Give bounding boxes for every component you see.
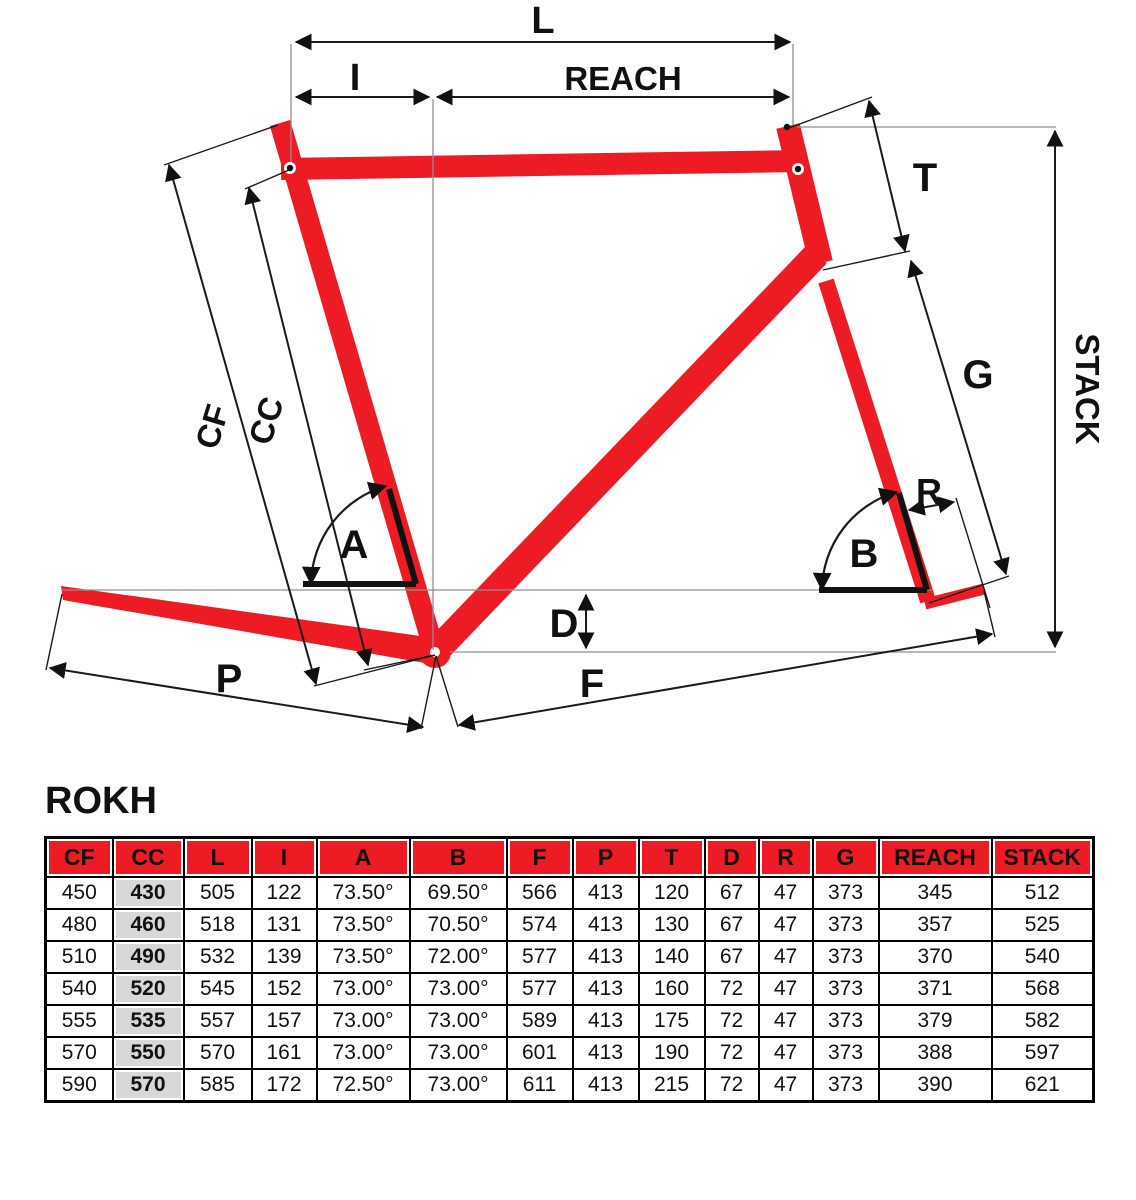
cell-a: 73.00° [317, 1005, 410, 1037]
label-A: A [340, 523, 369, 567]
cell-cf: 480 [46, 909, 113, 941]
label-CF: CF [188, 400, 236, 453]
cell-cf: 590 [46, 1069, 113, 1102]
cell-t: 175 [639, 1005, 705, 1037]
table-header: CFCCLIABFPTDRGREACHSTACK [46, 838, 1094, 878]
cell-reach: 357 [879, 909, 992, 941]
cell-g: 373 [813, 973, 879, 1005]
cell-cf: 450 [46, 877, 113, 909]
label-STACK: STACK [1069, 333, 1106, 444]
dim-F [459, 634, 992, 725]
column-header-d: D [705, 838, 759, 878]
table-row: 59057058517272.50°73.00°6114132157247373… [46, 1069, 1094, 1102]
cell-a: 73.50° [317, 909, 410, 941]
cell-stack: 568 [992, 973, 1094, 1005]
cell-t: 140 [639, 941, 705, 973]
column-header-reach: REACH [879, 838, 992, 878]
cell-r: 47 [759, 1005, 813, 1037]
cell-reach: 371 [879, 973, 992, 1005]
dimension-labels: L I REACH T G STACK R B A D F P CF CC [188, 0, 1106, 706]
header-row: CFCCLIABFPTDRGREACHSTACK [46, 838, 1094, 878]
cell-l: 518 [184, 909, 252, 941]
cell-f: 577 [507, 973, 573, 1005]
cell-g: 373 [813, 1037, 879, 1069]
cell-t: 120 [639, 877, 705, 909]
geometry-diagram: L I REACH T G STACK R B A D F P CF CC [0, 0, 1136, 772]
label-T: T [913, 156, 937, 200]
cell-l: 585 [184, 1069, 252, 1102]
cell-reach: 390 [879, 1069, 992, 1102]
cell-r: 47 [759, 877, 813, 909]
cell-stack: 512 [992, 877, 1094, 909]
head-tube [788, 126, 821, 263]
cell-f: 601 [507, 1037, 573, 1069]
cell-t: 215 [639, 1069, 705, 1102]
page-title: ROKH [45, 780, 1092, 823]
column-header-stack: STACK [992, 838, 1094, 878]
cell-p: 413 [573, 973, 639, 1005]
cell-l: 532 [184, 941, 252, 973]
column-header-a: A [317, 838, 410, 878]
top-tube [281, 161, 801, 169]
cell-p: 413 [573, 1005, 639, 1037]
chainstay [61, 586, 442, 666]
cell-cf: 570 [46, 1037, 113, 1069]
table-row: 57055057016173.00°73.00°6014131907247373… [46, 1037, 1094, 1069]
cell-g: 373 [813, 1069, 879, 1102]
cell-l: 505 [184, 877, 252, 909]
column-header-g: G [813, 838, 879, 878]
cell-a: 73.00° [317, 1037, 410, 1069]
label-G: G [962, 353, 993, 397]
cell-f: 574 [507, 909, 573, 941]
cell-cc: 535 [113, 1005, 184, 1037]
cell-r: 47 [759, 973, 813, 1005]
label-B: B [850, 532, 879, 576]
cell-cf: 555 [46, 1005, 113, 1037]
cell-cc: 490 [113, 941, 184, 973]
cell-a: 72.50° [317, 1069, 410, 1102]
cell-a: 73.00° [317, 973, 410, 1005]
cell-cc: 460 [113, 909, 184, 941]
cell-t: 160 [639, 973, 705, 1005]
cell-p: 413 [573, 1069, 639, 1102]
label-REACH: REACH [564, 60, 681, 97]
cell-stack: 597 [992, 1037, 1094, 1069]
cell-cf: 540 [46, 973, 113, 1005]
cell-stack: 582 [992, 1005, 1094, 1037]
cell-d: 72 [705, 1037, 759, 1069]
label-R: R [916, 471, 942, 512]
label-F: F [580, 662, 604, 706]
column-header-i: I [252, 838, 317, 878]
cell-r: 47 [759, 1069, 813, 1102]
cell-g: 373 [813, 909, 879, 941]
cell-d: 67 [705, 909, 759, 941]
cell-r: 47 [759, 1037, 813, 1069]
table-row: 48046051813173.50°70.50°5744131306747373… [46, 909, 1094, 941]
table-row: 55553555715773.00°73.00°5894131757247373… [46, 1005, 1094, 1037]
cell-reach: 388 [879, 1037, 992, 1069]
cell-a: 73.50° [317, 941, 410, 973]
label-P: P [216, 657, 243, 701]
cell-cc: 570 [113, 1069, 184, 1102]
cell-cc: 520 [113, 973, 184, 1005]
column-header-b: B [410, 838, 507, 878]
cell-g: 373 [813, 941, 879, 973]
cell-b: 72.00° [410, 941, 507, 973]
cell-cc: 550 [113, 1037, 184, 1069]
cell-cc: 430 [113, 877, 184, 909]
cell-g: 373 [813, 877, 879, 909]
cell-b: 73.00° [410, 1005, 507, 1037]
cell-b: 73.00° [410, 1069, 507, 1102]
cell-p: 413 [573, 941, 639, 973]
cell-p: 413 [573, 877, 639, 909]
cell-i: 161 [252, 1037, 317, 1069]
cell-i: 172 [252, 1069, 317, 1102]
column-header-cf: CF [46, 838, 113, 878]
column-header-p: P [573, 838, 639, 878]
cell-f: 577 [507, 941, 573, 973]
dim-T [869, 101, 905, 251]
cell-f: 589 [507, 1005, 573, 1037]
column-header-cc: CC [113, 838, 184, 878]
label-L: L [531, 0, 554, 42]
cell-r: 47 [759, 941, 813, 973]
cell-i: 157 [252, 1005, 317, 1037]
cell-reach: 345 [879, 877, 992, 909]
cell-reach: 370 [879, 941, 992, 973]
cell-stack: 525 [992, 909, 1094, 941]
cell-stack: 621 [992, 1069, 1094, 1102]
table-row: 51049053213973.50°72.00°5774131406747373… [46, 941, 1094, 973]
cell-i: 152 [252, 973, 317, 1005]
table-row: 45043050512273.50°69.50°5664131206747373… [46, 877, 1094, 909]
cell-l: 545 [184, 973, 252, 1005]
cell-i: 131 [252, 909, 317, 941]
cell-i: 139 [252, 941, 317, 973]
cell-reach: 379 [879, 1005, 992, 1037]
geometry-table: CFCCLIABFPTDRGREACHSTACK 45043050512273.… [44, 836, 1095, 1103]
cell-d: 72 [705, 1005, 759, 1037]
cell-g: 373 [813, 1005, 879, 1037]
label-CC: CC [241, 392, 290, 448]
page: L I REACH T G STACK R B A D F P CF CC RO… [0, 0, 1136, 1200]
column-header-t: T [639, 838, 705, 878]
cell-f: 566 [507, 877, 573, 909]
cell-b: 73.00° [410, 973, 507, 1005]
cell-t: 190 [639, 1037, 705, 1069]
column-header-r: R [759, 838, 813, 878]
cell-r: 47 [759, 909, 813, 941]
cell-p: 413 [573, 1037, 639, 1069]
cell-t: 130 [639, 909, 705, 941]
cell-l: 557 [184, 1005, 252, 1037]
cell-a: 73.50° [317, 877, 410, 909]
cell-d: 72 [705, 1069, 759, 1102]
label-I: I [350, 57, 361, 99]
table-row: 54052054515273.00°73.00°5774131607247373… [46, 973, 1094, 1005]
cell-stack: 540 [992, 941, 1094, 973]
cell-b: 73.00° [410, 1037, 507, 1069]
label-D: D [550, 602, 579, 646]
bike-frame [61, 123, 984, 668]
cell-p: 413 [573, 909, 639, 941]
cell-d: 67 [705, 941, 759, 973]
cell-b: 69.50° [410, 877, 507, 909]
cell-d: 67 [705, 877, 759, 909]
table-body: 45043050512273.50°69.50°5664131206747373… [46, 877, 1094, 1102]
dim-G [911, 261, 1006, 574]
cell-i: 122 [252, 877, 317, 909]
cell-b: 70.50° [410, 909, 507, 941]
table-section: ROKH CFCCLIABFPTDRGREACHSTACK 4504305051… [44, 780, 1092, 1103]
column-header-f: F [507, 838, 573, 878]
column-header-l: L [184, 838, 252, 878]
cell-cf: 510 [46, 941, 113, 973]
cell-l: 570 [184, 1037, 252, 1069]
cell-d: 72 [705, 973, 759, 1005]
cell-f: 611 [507, 1069, 573, 1102]
